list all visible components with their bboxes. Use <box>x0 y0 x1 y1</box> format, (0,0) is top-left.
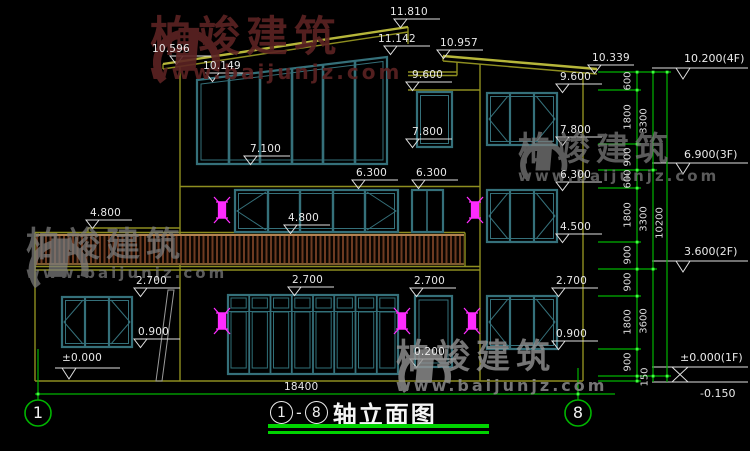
title-axis-end: 8 <box>305 401 328 424</box>
elev-label: ±0.000 <box>62 352 102 364</box>
elevation-drawing-canvas <box>0 0 750 451</box>
elev-label: 9.600 <box>560 71 591 83</box>
elev-label: 0.900 <box>138 326 169 338</box>
elev-label: 4.800 <box>288 212 319 224</box>
elev-label: 9.600 <box>412 69 443 81</box>
title-underline-thick <box>268 424 489 428</box>
elev-label: 4.800 <box>90 207 121 219</box>
dim-value: 3300 <box>639 206 650 231</box>
elev-label: 10.957 <box>440 37 478 49</box>
elev-label: 7.800 <box>412 126 443 138</box>
dim-value: 600 <box>623 71 634 90</box>
dim-value: 3600 <box>639 308 650 333</box>
elev-label: 6.300 <box>560 169 591 181</box>
elev-label: 11.142 <box>378 33 416 45</box>
dim-value: 10200 <box>655 207 666 239</box>
elev-label: 10.339 <box>592 52 630 64</box>
balcony-railing <box>36 234 464 265</box>
elev-label: 2.700 <box>414 275 445 287</box>
elev-label: 0.200 <box>414 346 445 358</box>
elev-label: 6.300 <box>416 167 447 179</box>
elev-label: 6.300 <box>356 167 387 179</box>
dim-value: 150 <box>640 367 651 386</box>
axis-bubble-1: 1 <box>33 403 43 422</box>
dim-value: 900 <box>623 352 634 371</box>
elevation-markers <box>55 19 634 379</box>
dim-value: 600 <box>623 169 634 188</box>
dim-value: 900 <box>623 147 634 166</box>
floor-level-label: 6.900(3F) <box>684 148 737 161</box>
floor-level-label: -0.150 <box>700 387 735 400</box>
elev-label: 7.100 <box>250 143 281 155</box>
elev-label: 10.149 <box>203 60 241 72</box>
cad-elevation-screenshot: 柏竣建筑 www.baijunjz.com 柏竣建筑 www.baijunjz.… <box>0 0 750 451</box>
elev-label: 2.700 <box>292 274 323 286</box>
floor-level-label: 3.600(2F) <box>684 245 737 258</box>
title-dash: - <box>296 403 302 422</box>
elev-label: 4.500 <box>560 221 591 233</box>
elev-label: 11.810 <box>390 6 428 18</box>
elev-label: 2.700 <box>136 275 167 287</box>
floor-level-label: ±0.000(1F) <box>680 351 743 364</box>
dim-value: 900 <box>623 272 634 291</box>
elev-label: 7.800 <box>560 124 591 136</box>
floor-level-label: 10.200(4F) <box>684 52 744 65</box>
elev-label: 10.596 <box>152 43 190 55</box>
dim-value: 3300 <box>639 108 650 133</box>
dim-value: 1800 <box>623 309 634 334</box>
dim-value: 1800 <box>623 104 634 129</box>
dim-value: 900 <box>623 245 634 264</box>
elev-label: 2.700 <box>556 275 587 287</box>
title-underline-thin <box>268 431 489 434</box>
total-width-dim: 18400 <box>284 381 318 393</box>
elev-label: 0.900 <box>556 328 587 340</box>
axis-bubble-8: 8 <box>573 403 583 422</box>
title-axis-start: 1 <box>270 401 293 424</box>
dim-value: 1800 <box>623 202 634 227</box>
